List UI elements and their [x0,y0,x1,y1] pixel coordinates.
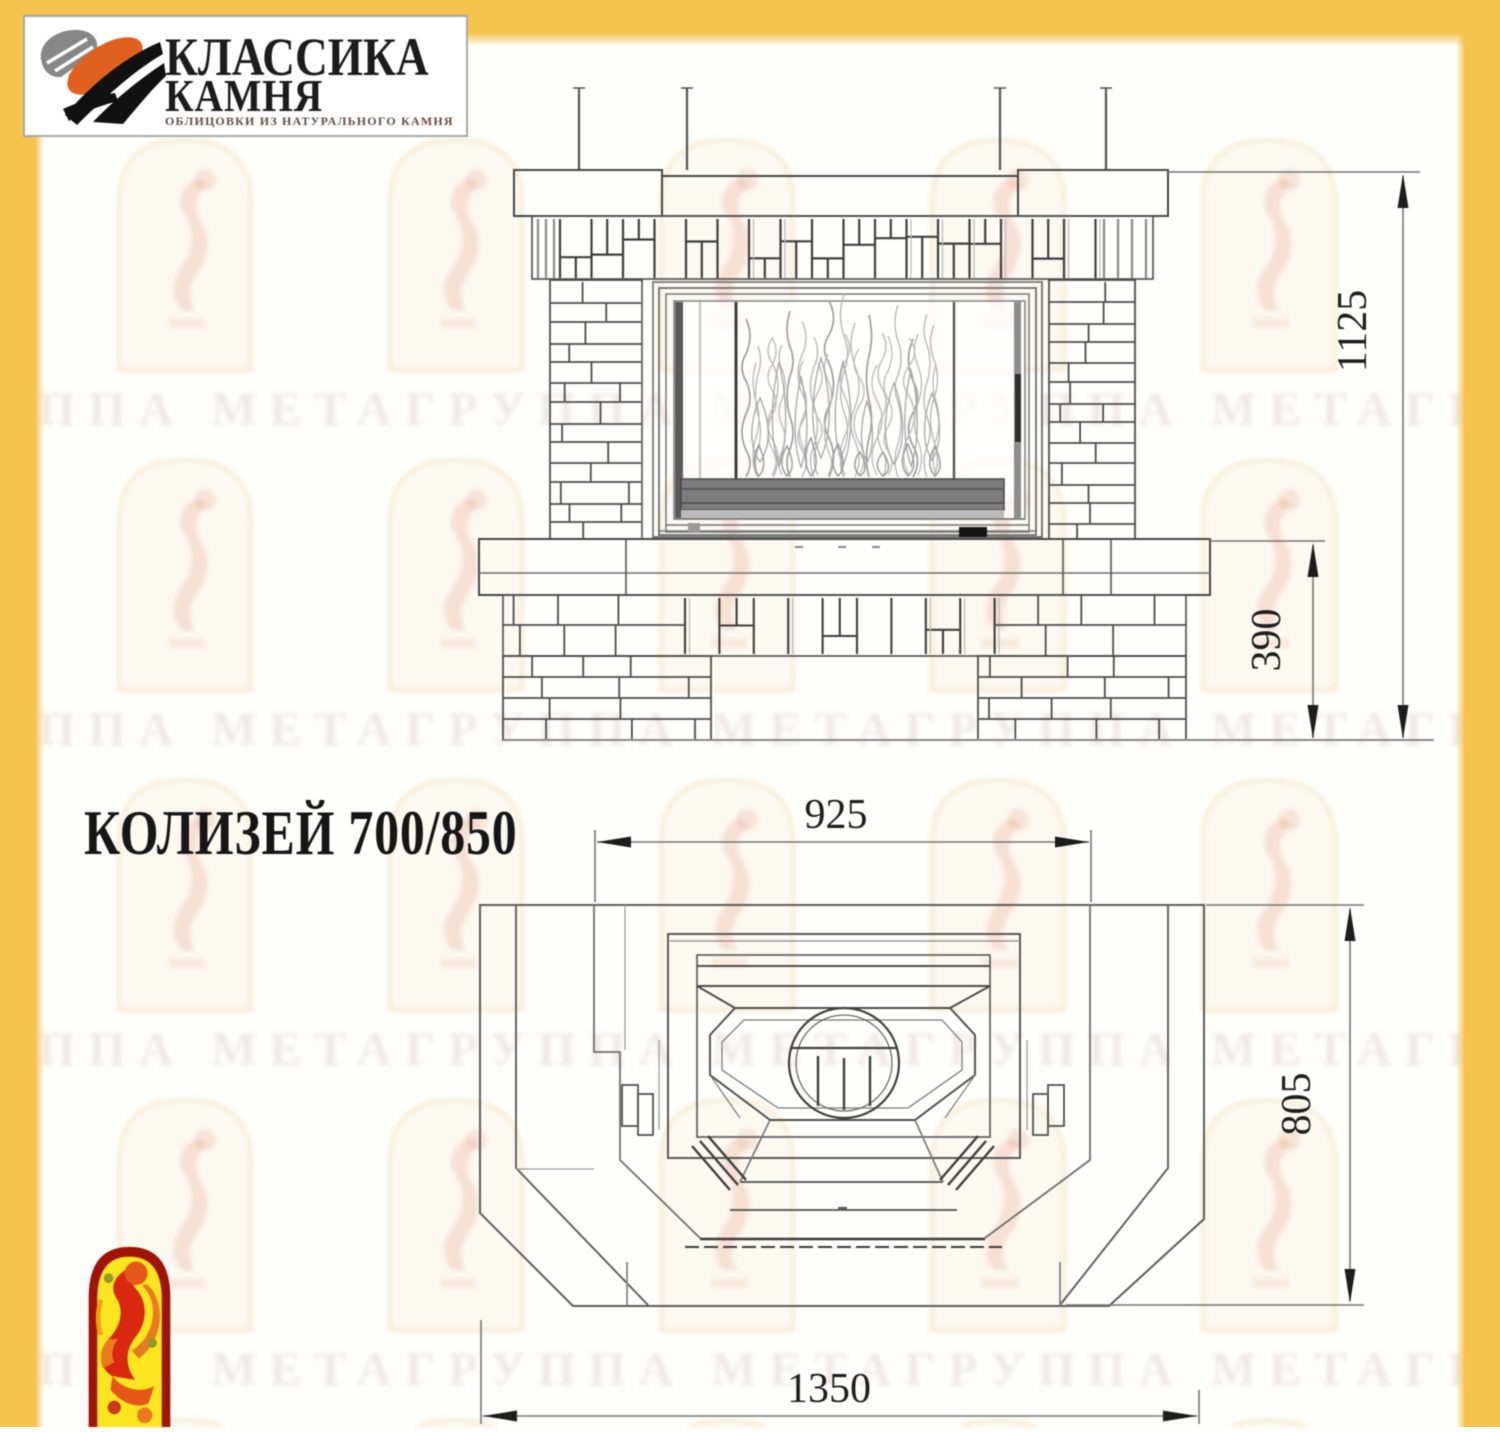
svg-text:805: 805 [1274,1073,1320,1136]
svg-text:КОЛИЗЕЙ 700/850: КОЛИЗЕЙ 700/850 [84,798,517,868]
svg-text:925: 925 [805,792,868,838]
svg-text:1350: 1350 [787,1366,871,1412]
svg-text:1125: 1125 [1330,290,1376,372]
svg-text:390: 390 [1244,609,1290,672]
